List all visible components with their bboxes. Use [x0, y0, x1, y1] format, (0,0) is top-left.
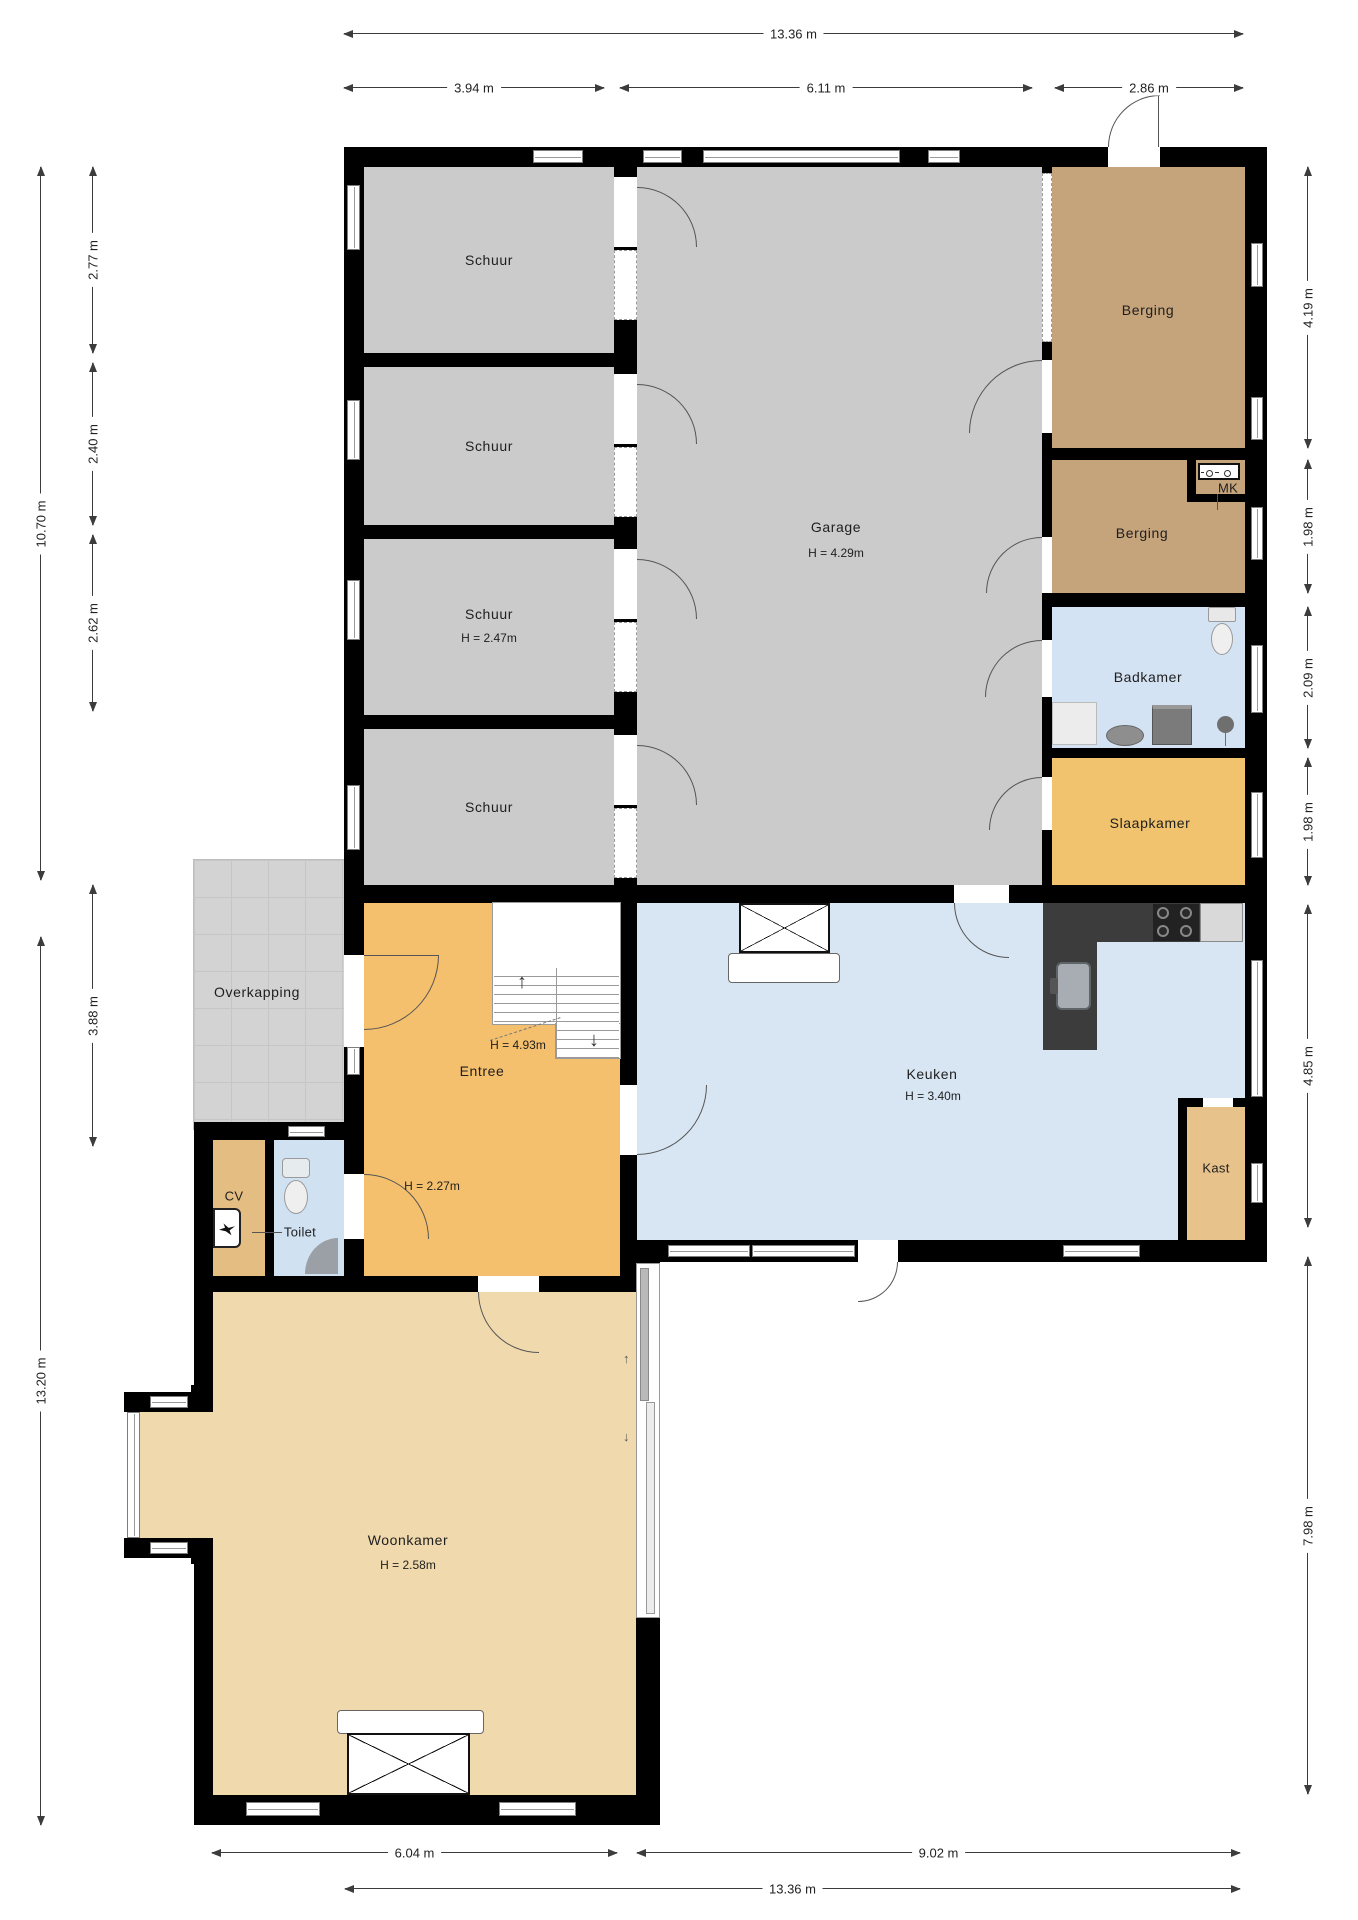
label-overkapping: Overkapping — [214, 984, 300, 1000]
window-schuur-3 — [347, 580, 360, 640]
label-entree: Entree — [460, 1063, 505, 1079]
label-schuur-3-height: H = 2.47m — [461, 631, 517, 645]
label-badkamer: Badkamer — [1114, 669, 1183, 685]
label-garage-height: H = 4.29m — [808, 546, 864, 560]
cv-boiler-icon — [213, 1208, 241, 1248]
stairs-down-arrow-icon: ↓ — [589, 1030, 599, 1050]
bathroom-sink-icon — [1106, 725, 1144, 746]
dim-right-5: 4.85 m — [1307, 905, 1308, 1227]
bathroom-cabinet — [1052, 702, 1097, 745]
chimney-flue — [739, 903, 830, 953]
dim-right-4: 1.98 m — [1307, 758, 1308, 885]
dim-bottom-seg-2: 9.02 m — [637, 1852, 1240, 1853]
wc-bowl-icon — [284, 1180, 308, 1214]
dim-bottom-total: 13.36 m — [345, 1888, 1240, 1889]
label-toilet: Toilet — [284, 1225, 316, 1240]
wall-west-mid — [194, 1140, 213, 1385]
meter-box-icon — [1198, 463, 1240, 480]
dim-left-outer-2: 13.20 m — [40, 937, 41, 1825]
wall-toilet-north — [194, 1122, 364, 1140]
window-entree-sidelight — [347, 1047, 360, 1075]
label-mk: MK — [1218, 481, 1238, 496]
window-kast — [1251, 1163, 1263, 1203]
label-berging-2: Berging — [1116, 525, 1168, 541]
wall-berging-badkamer — [1052, 593, 1245, 607]
bay-window-south — [150, 1542, 188, 1554]
window-north-2 — [643, 150, 682, 163]
label-garage: Garage — [811, 519, 861, 535]
slide-direction-down-icon: ↓ — [623, 1430, 630, 1443]
window-berging1-a — [1251, 243, 1263, 287]
window-woonkamer-south-2 — [499, 1802, 576, 1816]
room-schuur-3 — [364, 539, 614, 715]
window-berging1-b — [1251, 397, 1263, 440]
dim-right-6: 7.98 m — [1307, 1257, 1308, 1794]
label-woonkamer: Woonkamer — [368, 1532, 449, 1548]
dim-top-seg-2: 6.11 m — [620, 87, 1032, 88]
dim-right-1: 4.19 m — [1307, 167, 1308, 448]
window-keuken-south-2 — [752, 1245, 855, 1257]
opening-berging-1 — [1042, 173, 1052, 342]
label-slaapkamer: Slaapkamer — [1110, 815, 1191, 831]
label-schuur-2: Schuur — [465, 438, 513, 454]
wall-badkamer-slaapkamer — [1052, 748, 1245, 758]
chimney-mantel — [728, 953, 840, 983]
window-schuur-4 — [347, 785, 360, 850]
wall-schuur-divider-1 — [364, 353, 614, 367]
label-schuur-3: Schuur — [465, 606, 513, 622]
dim-top-seg-3: 2.86 m — [1055, 87, 1243, 88]
bay-window-floor — [140, 1412, 213, 1538]
dim-left-inner-1: 2.77 m — [92, 167, 93, 353]
label-woonkamer-height: H = 2.58m — [380, 1558, 436, 1572]
window-slaapkamer — [1251, 792, 1263, 858]
wall-west-lower — [194, 1564, 213, 1825]
toilet-bowl-icon — [1211, 623, 1233, 655]
label-entree-stairwell-height: H = 4.93m — [490, 1038, 546, 1052]
door-kast — [1203, 1098, 1233, 1107]
label-keuken: Keuken — [906, 1066, 957, 1082]
opening-schuur-1 — [614, 250, 637, 320]
dim-right-3: 2.09 m — [1307, 607, 1308, 748]
label-schuur-1: Schuur — [465, 252, 513, 268]
window-woonkamer-south-1 — [246, 1802, 320, 1816]
kitchen-appliance — [1200, 903, 1243, 942]
fireplace-flue — [347, 1733, 470, 1795]
wall-south-northwing — [344, 885, 1267, 903]
window-keuken-east — [1251, 960, 1263, 1097]
dim-bottom-seg-1: 6.04 m — [212, 1852, 617, 1853]
shower-head-icon — [1217, 716, 1234, 733]
bay-window-west — [127, 1412, 140, 1538]
window-schuur-1 — [347, 185, 360, 250]
wall-cv-toilet — [265, 1140, 274, 1276]
window-keuken-south-1 — [668, 1245, 750, 1257]
label-schuur-4: Schuur — [465, 799, 513, 815]
washing-machine-icon — [1152, 705, 1192, 745]
label-kast: Kast — [1202, 1161, 1229, 1176]
door-berging-exterior — [1108, 95, 1160, 147]
floorplan-canvas: ↑ ↓ ↑ ↓ Schuur — [0, 0, 1358, 1920]
label-keuken-height: H = 3.40m — [905, 1089, 961, 1103]
wall-schuur-divider-2 — [364, 525, 614, 539]
mk-leader-line — [1217, 494, 1218, 510]
label-berging-1: Berging — [1122, 302, 1174, 318]
bay-window-north — [150, 1396, 188, 1408]
fireplace-mantel — [337, 1710, 484, 1734]
dim-right-2: 1.98 m — [1307, 460, 1308, 593]
wall-schuur-divider-3 — [364, 715, 614, 729]
toilet-leader-line — [252, 1232, 282, 1233]
wall-woonkamer-north — [194, 1276, 660, 1292]
slide-direction-up-icon: ↑ — [623, 1352, 630, 1365]
dim-left-inner-4: 3.88 m — [92, 885, 93, 1146]
stairs-up-arrow-icon: ↑ — [517, 972, 527, 992]
window-schuur-2 — [347, 400, 360, 460]
wc-sink-icon — [282, 1158, 310, 1178]
label-cv: CV — [225, 1189, 244, 1204]
window-keuken-south-3 — [1063, 1245, 1140, 1257]
dim-left-inner-3: 2.62 m — [92, 535, 93, 711]
door-keuken-terras — [858, 1262, 898, 1302]
window-north-band — [703, 150, 900, 163]
kitchen-sink-icon — [1056, 962, 1091, 1010]
opening-schuur-4 — [614, 808, 637, 878]
wall-woonkamer-east-lower — [636, 1618, 660, 1825]
toilet-cistern-icon — [1208, 607, 1236, 622]
window-badkamer — [1251, 645, 1263, 713]
dim-top-seg-1: 3.94 m — [344, 87, 604, 88]
wall-berging-divider — [1052, 448, 1245, 460]
window-north-1 — [533, 150, 583, 163]
opening-schuur-2 — [614, 447, 637, 517]
dim-left-inner-2: 2.40 m — [92, 363, 93, 525]
kitchen-faucet-icon — [1050, 978, 1058, 994]
wall-woonkamer-east-corner — [636, 1242, 660, 1263]
label-entree-height: H = 2.27m — [404, 1179, 460, 1193]
stove-icon — [1153, 904, 1199, 941]
window-north-3 — [928, 150, 960, 163]
dim-left-outer-1: 10.70 m — [40, 167, 41, 880]
opening-schuur-3 — [614, 622, 637, 692]
window-toilet — [288, 1126, 325, 1137]
window-berging2 — [1251, 507, 1263, 560]
wall-kast-west — [1178, 1098, 1187, 1240]
dim-top-total: 13.36 m — [344, 33, 1243, 34]
